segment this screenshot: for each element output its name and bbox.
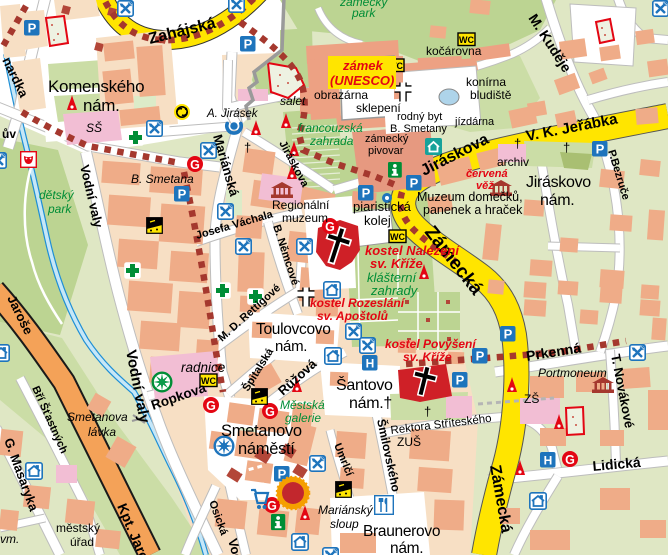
svg-text:ův: ův	[2, 127, 16, 141]
svg-text:francouzská: francouzská	[298, 121, 363, 135]
svg-text:(UNESCO): (UNESCO)	[330, 73, 394, 88]
svg-text:Muzeum domečků,: Muzeum domečků,	[417, 190, 523, 204]
svg-text:nám.: nám.	[540, 192, 574, 209]
svg-text:sloup: sloup	[330, 517, 359, 531]
svg-text:konírna: konírna	[466, 75, 506, 89]
svg-text:jízdárna: jízdárna	[454, 116, 495, 128]
svg-text:galerie: galerie	[285, 411, 321, 425]
svg-text:Komenského: Komenského	[48, 77, 144, 96]
svg-text:nám.: nám.	[83, 96, 120, 115]
svg-text:ZŠ: ZŠ	[524, 391, 539, 406]
svg-text:†: †	[424, 404, 431, 419]
svg-text:sv. Apoštolů: sv. Apoštolů	[317, 309, 389, 323]
svg-text:náměstí: náměstí	[238, 440, 295, 458]
svg-text:A. Jirásek: A. Jirásek	[206, 108, 259, 120]
svg-text:dětský: dětský	[39, 188, 75, 202]
svg-text:pivovar: pivovar	[368, 145, 404, 157]
svg-text:salet: salet	[280, 94, 306, 108]
svg-text:nám.: nám.	[390, 540, 423, 555]
svg-text:Regionální: Regionální	[272, 198, 330, 212]
svg-text:vm.: vm.	[0, 532, 19, 546]
svg-text:kostel Rozeslání: kostel Rozeslání	[310, 296, 406, 310]
svg-text:sklepení: sklepení	[356, 101, 401, 115]
svg-text:panenek a hraček: panenek a hraček	[423, 203, 523, 217]
svg-text:B. Smetana: B. Smetana	[131, 172, 194, 186]
svg-text:kočárovna: kočárovna	[426, 44, 482, 58]
svg-text:Smetanova: Smetanova	[67, 410, 128, 424]
svg-text:zámecký: zámecký	[365, 133, 409, 145]
svg-text:sv. Kříže: sv. Kříže	[370, 256, 423, 271]
svg-text:rodný byt: rodný byt	[397, 111, 442, 123]
svg-text:červená: červená	[466, 168, 508, 180]
svg-text:lávka: lávka	[88, 425, 116, 439]
svg-text:zahrada: zahrada	[309, 134, 354, 148]
svg-text:bludiště: bludiště	[470, 88, 512, 102]
svg-text:ZUŠ: ZUŠ	[397, 434, 421, 449]
svg-text:SŠ: SŠ	[86, 120, 102, 135]
svg-text:Mariánský: Mariánský	[318, 503, 374, 517]
svg-text:obrazárna: obrazárna	[314, 88, 368, 102]
svg-text:archiv: archiv	[497, 155, 529, 169]
svg-text:Šantovo: Šantovo	[336, 375, 393, 394]
svg-text:nám.: nám.	[275, 338, 307, 355]
svg-text:park: park	[351, 6, 376, 20]
svg-text:úřad: úřad	[70, 535, 94, 549]
svg-text:Portmoneum: Portmoneum	[538, 366, 607, 380]
svg-text:piaristická: piaristická	[353, 199, 412, 214]
svg-text:†: †	[563, 140, 570, 155]
svg-text:muzeum: muzeum	[282, 211, 328, 225]
svg-text:Toulovcovo: Toulovcovo	[256, 321, 331, 338]
svg-text:†: †	[244, 140, 251, 155]
svg-text:†: †	[514, 136, 521, 151]
svg-text:Braunerovo: Braunerovo	[363, 523, 440, 540]
svg-text:městský: městský	[56, 521, 100, 535]
svg-text:Městská: Městská	[280, 398, 325, 412]
svg-text:radnice: radnice	[181, 360, 225, 375]
svg-text:park: park	[47, 202, 72, 216]
svg-text:sv. Kříže: sv. Kříže	[403, 350, 452, 364]
svg-text:věž: věž	[476, 180, 494, 192]
svg-text:Jiráskovo: Jiráskovo	[526, 174, 591, 191]
svg-text:kolej: kolej	[364, 213, 391, 228]
svg-text:nám.†: nám.†	[349, 395, 392, 412]
svg-text:zámek: zámek	[342, 58, 384, 73]
svg-text:kostel Povýšení: kostel Povýšení	[385, 337, 477, 351]
